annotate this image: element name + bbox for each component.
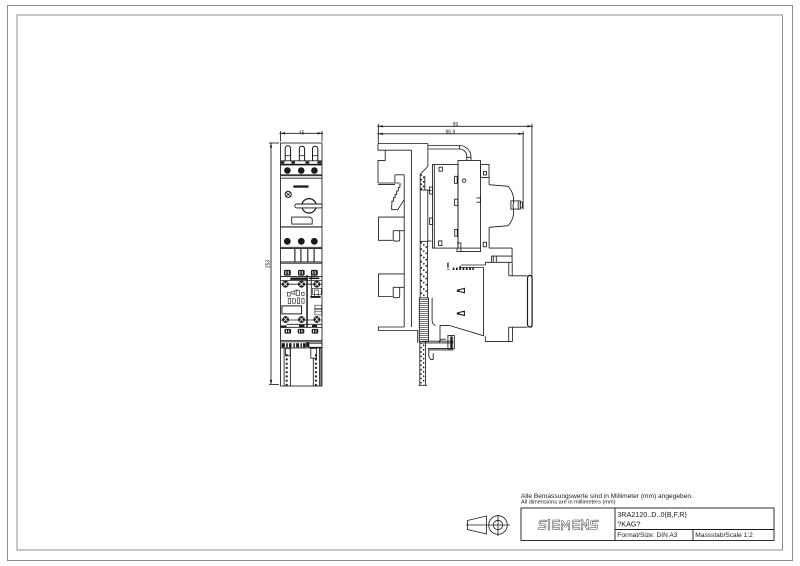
svg-text:Massstab/Scale 1:2: Massstab/Scale 1:2 — [695, 532, 753, 539]
svg-text:99: 99 — [453, 122, 459, 128]
svg-text:96.9: 96.9 — [446, 129, 456, 135]
svg-text:253: 253 — [266, 260, 272, 269]
svg-text:Format/Size: DIN A3: Format/Size: DIN A3 — [617, 532, 677, 539]
svg-text:3RA2120..D..0(B,F,R): 3RA2120..D..0(B,F,R) — [617, 510, 687, 519]
svg-text:45: 45 — [299, 131, 305, 137]
svg-text:?KAG?: ?KAG? — [617, 520, 640, 529]
svg-text:All dimensions are in millimet: All dimensions are in millimeters (mm) — [521, 499, 616, 505]
